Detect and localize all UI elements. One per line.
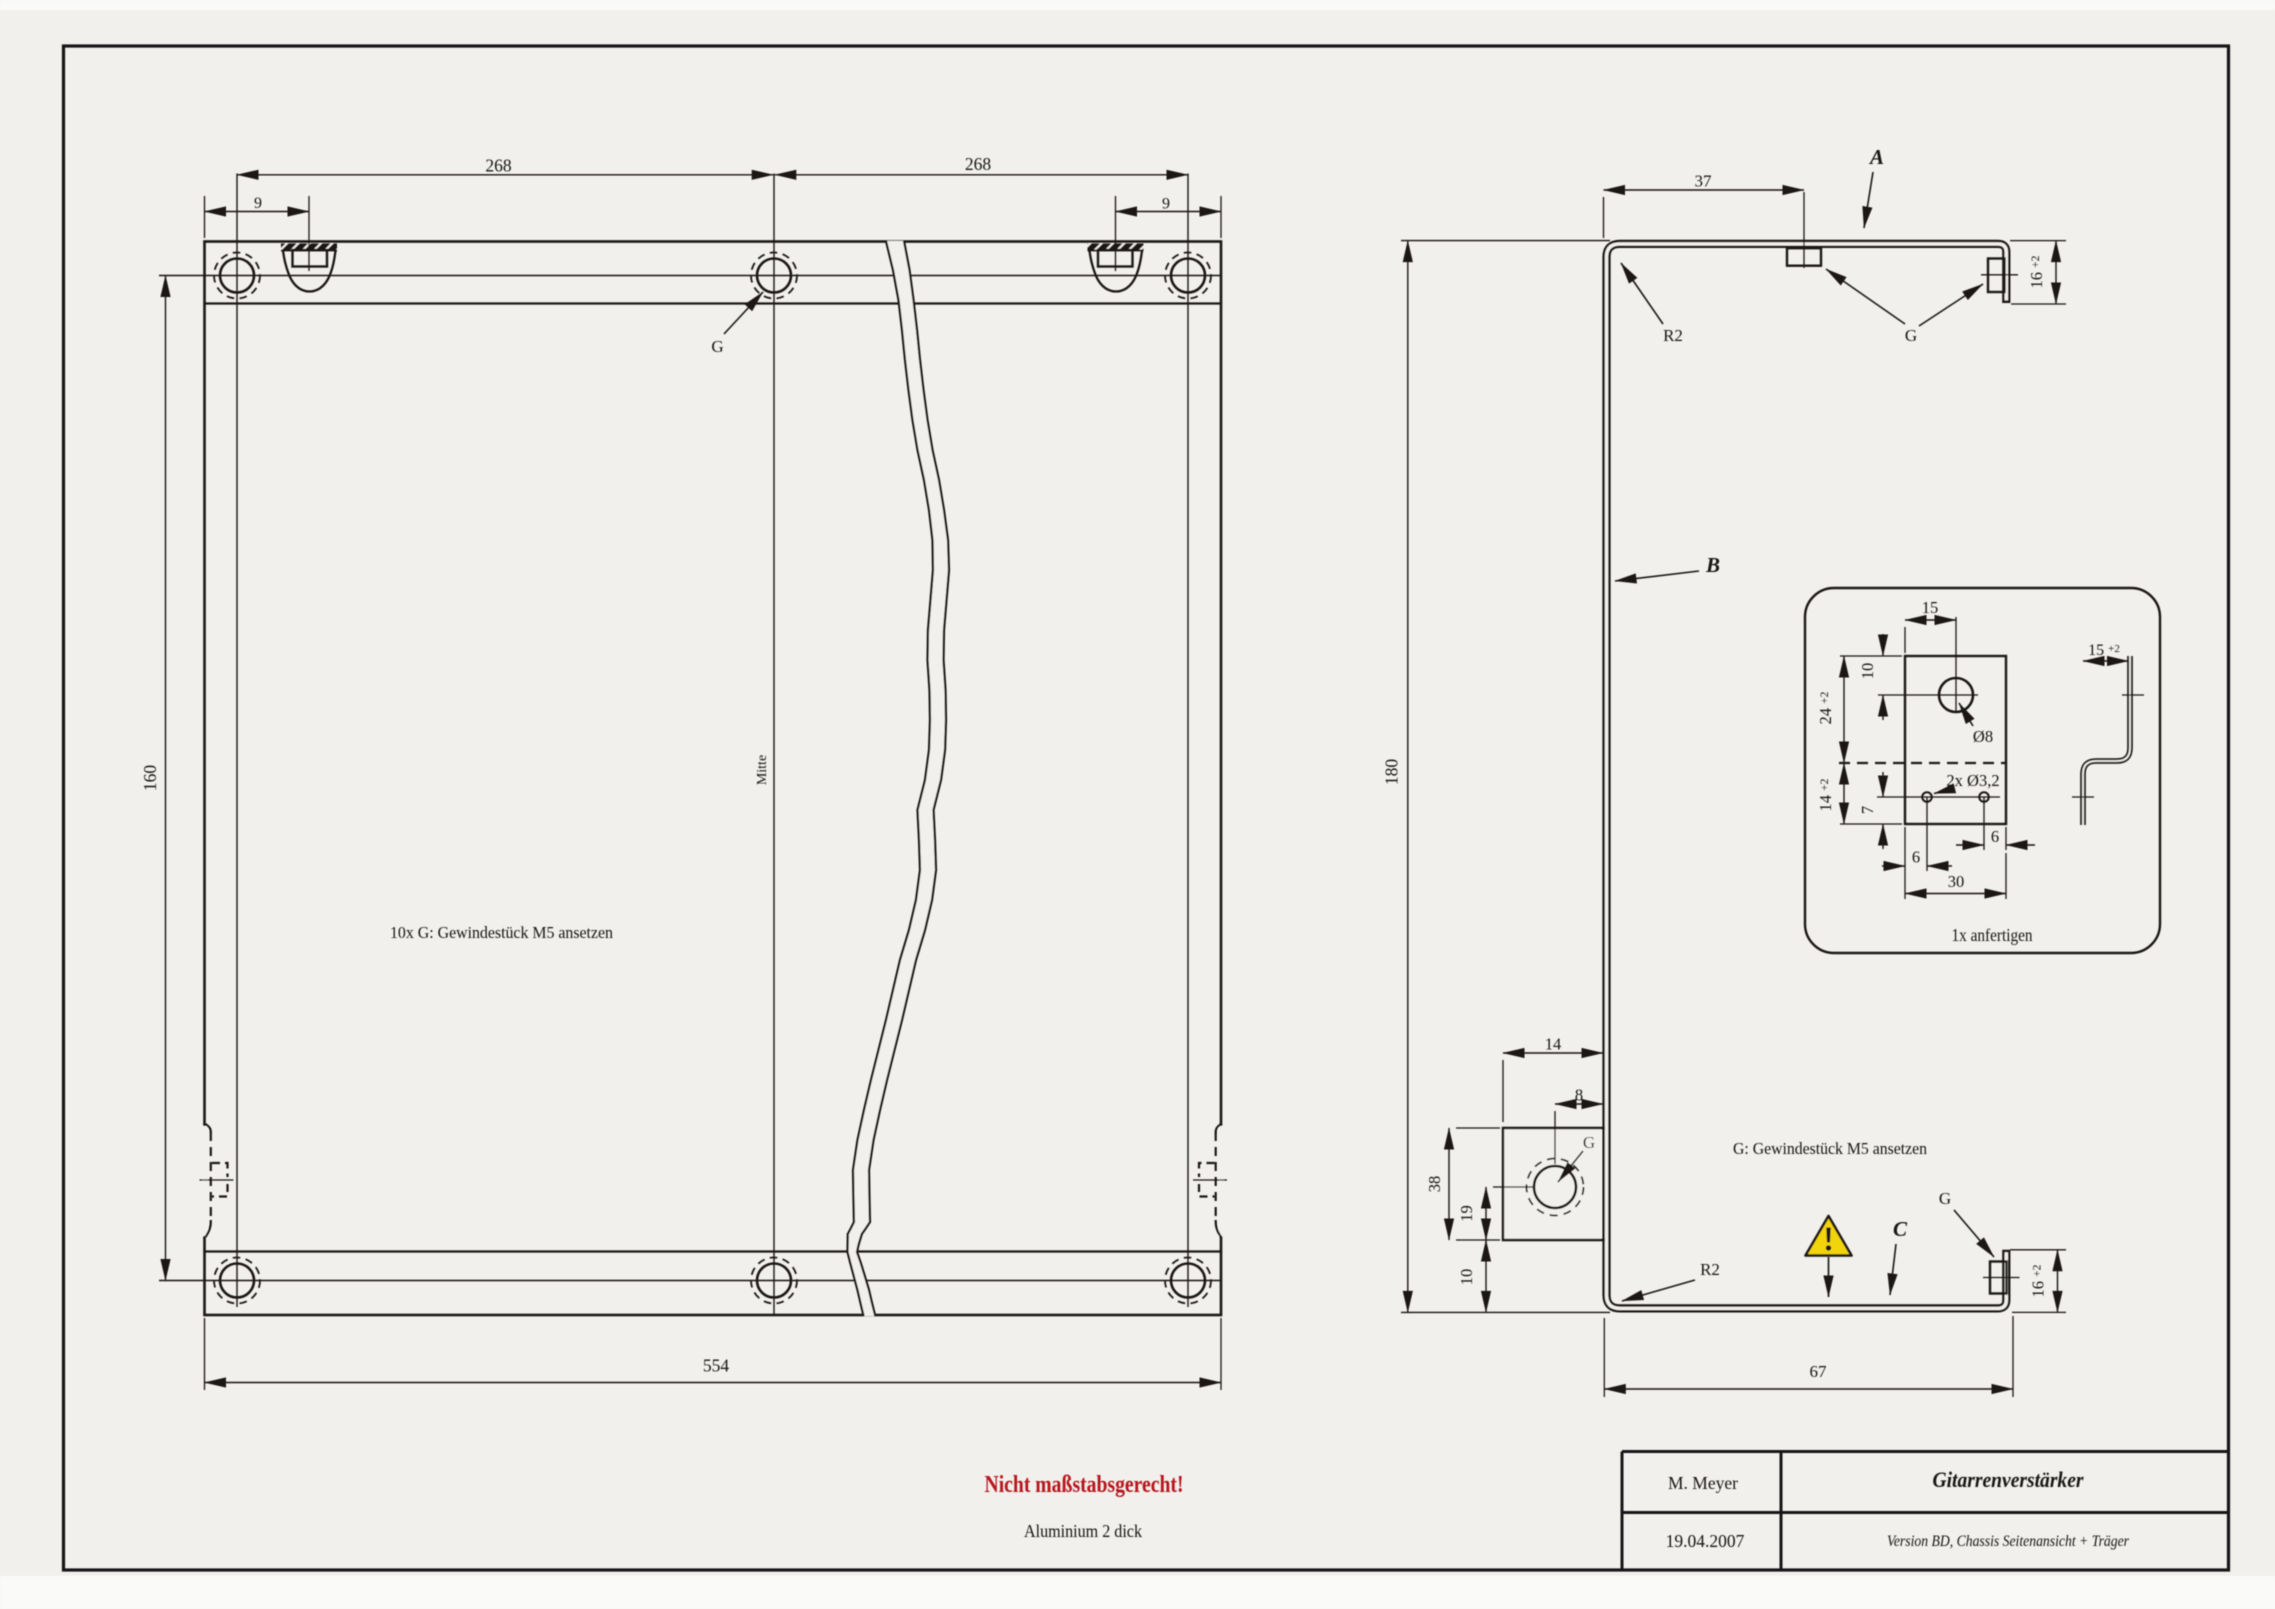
svg-text:30: 30: [1948, 872, 1965, 891]
svg-text:Mitte: Mitte: [755, 755, 770, 785]
svg-text:9: 9: [1162, 196, 1170, 213]
svg-text:15: 15: [1922, 598, 1939, 617]
svg-text:554: 554: [703, 1356, 730, 1376]
svg-text:C: C: [1893, 1217, 1908, 1241]
svg-text:M. Meyer: M. Meyer: [1668, 1473, 1738, 1493]
svg-text:B: B: [1705, 553, 1720, 577]
svg-text:67: 67: [1810, 1362, 1828, 1381]
svg-text:Version BD, Chassis Seitenansi: Version BD, Chassis Seitenansicht + Träg…: [1887, 1533, 2130, 1550]
svg-text:19: 19: [1457, 1205, 1476, 1222]
svg-text:37: 37: [1695, 172, 1713, 191]
svg-text:Ø8: Ø8: [1973, 727, 1993, 746]
svg-text:Gitarrenverstärker: Gitarrenverstärker: [1933, 1467, 2084, 1492]
svg-text:R2: R2: [1663, 326, 1683, 345]
svg-text:G: G: [1583, 1133, 1595, 1152]
svg-text:19.04.2007: 19.04.2007: [1666, 1531, 1745, 1551]
svg-text:G: G: [1905, 326, 1917, 345]
svg-text:R2: R2: [1700, 1260, 1720, 1279]
svg-text:268: 268: [485, 156, 512, 176]
svg-text:7: 7: [1858, 806, 1877, 814]
svg-text:G: G: [1939, 1189, 1951, 1208]
svg-text:G: G: [711, 337, 723, 356]
svg-text:14: 14: [1545, 1035, 1562, 1054]
svg-text:160: 160: [140, 765, 160, 792]
svg-text:A: A: [1868, 145, 1884, 169]
svg-text:6: 6: [1912, 848, 1920, 867]
svg-text:G: Gewindestück M5 ansetzen: G: Gewindestück M5 ansetzen: [1733, 1139, 1927, 1158]
svg-text:180: 180: [1382, 759, 1402, 786]
svg-text:9: 9: [254, 195, 262, 212]
svg-text:10: 10: [1858, 663, 1877, 680]
svg-text:2x Ø3,2: 2x Ø3,2: [1946, 771, 1999, 790]
svg-text:1x anfertigen: 1x anfertigen: [1952, 925, 2033, 945]
svg-text:Nicht maßstabsgerecht!: Nicht maßstabsgerecht!: [985, 1472, 1184, 1498]
svg-text:268: 268: [965, 154, 992, 174]
svg-text:38: 38: [1425, 1176, 1444, 1193]
svg-text:10x G: Gewindestück M5 ansetze: 10x G: Gewindestück M5 ansetzen: [390, 923, 613, 942]
svg-text:Aluminium 2 dick: Aluminium 2 dick: [1024, 1521, 1142, 1541]
svg-text:10: 10: [1457, 1269, 1476, 1286]
svg-text:6: 6: [1991, 827, 1999, 846]
svg-text:8: 8: [1575, 1086, 1583, 1105]
